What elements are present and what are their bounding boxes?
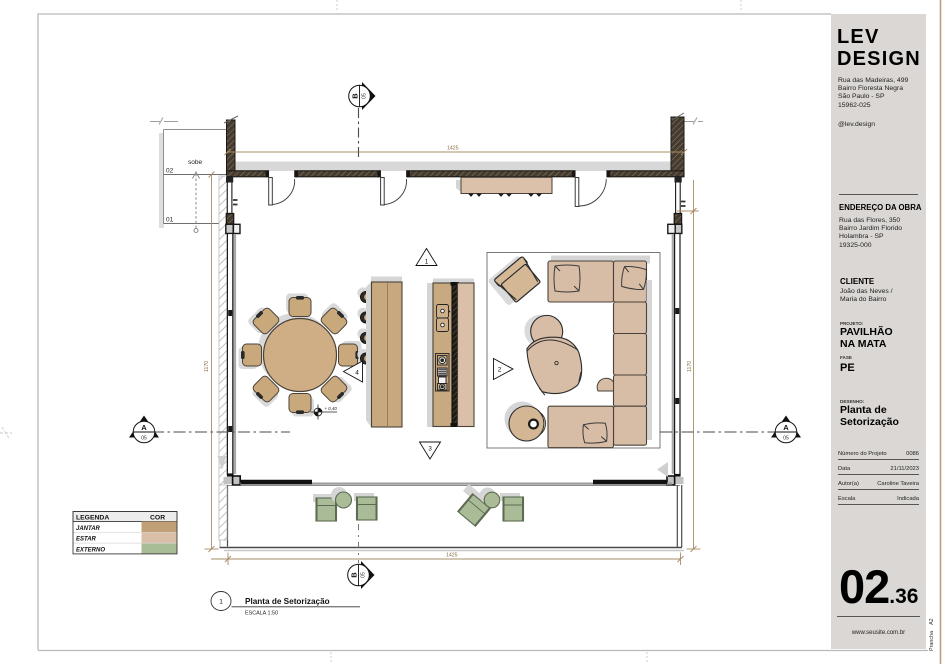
svg-text:COR: COR <box>150 515 165 522</box>
svg-text:A: A <box>783 423 789 432</box>
svg-text:02: 02 <box>166 168 174 175</box>
svg-text:ESCALA 1:50: ESCALA 1:50 <box>245 611 278 617</box>
svg-text:1: 1 <box>219 599 223 606</box>
svg-text:EXTERNO: EXTERNO <box>76 547 105 553</box>
svg-text:A: A <box>141 423 147 432</box>
svg-text:1170: 1170 <box>204 361 210 372</box>
svg-text:05: 05 <box>783 436 789 442</box>
svg-text:B: B <box>351 93 360 99</box>
svg-text:B: B <box>350 572 359 578</box>
svg-text:05: 05 <box>361 572 367 578</box>
svg-text:4: 4 <box>355 370 359 377</box>
svg-text:JANTAR: JANTAR <box>76 526 101 532</box>
svg-text:3: 3 <box>428 446 432 453</box>
svg-text:sobe: sobe <box>188 159 202 166</box>
svg-text:1425: 1425 <box>446 553 458 559</box>
svg-text:LEGENDA: LEGENDA <box>76 515 109 522</box>
svg-text:2: 2 <box>498 367 502 374</box>
svg-text:05: 05 <box>362 93 368 99</box>
svg-text:1: 1 <box>425 259 429 266</box>
svg-text:01: 01 <box>166 217 174 224</box>
svg-text:1170: 1170 <box>687 361 693 372</box>
svg-text:05: 05 <box>141 436 147 442</box>
svg-text:1425: 1425 <box>447 146 459 152</box>
svg-text:+ 0,40: + 0,40 <box>325 406 338 411</box>
svg-text:Planta de Setorização: Planta de Setorização <box>245 597 330 606</box>
svg-text:ESTAR: ESTAR <box>76 537 97 543</box>
